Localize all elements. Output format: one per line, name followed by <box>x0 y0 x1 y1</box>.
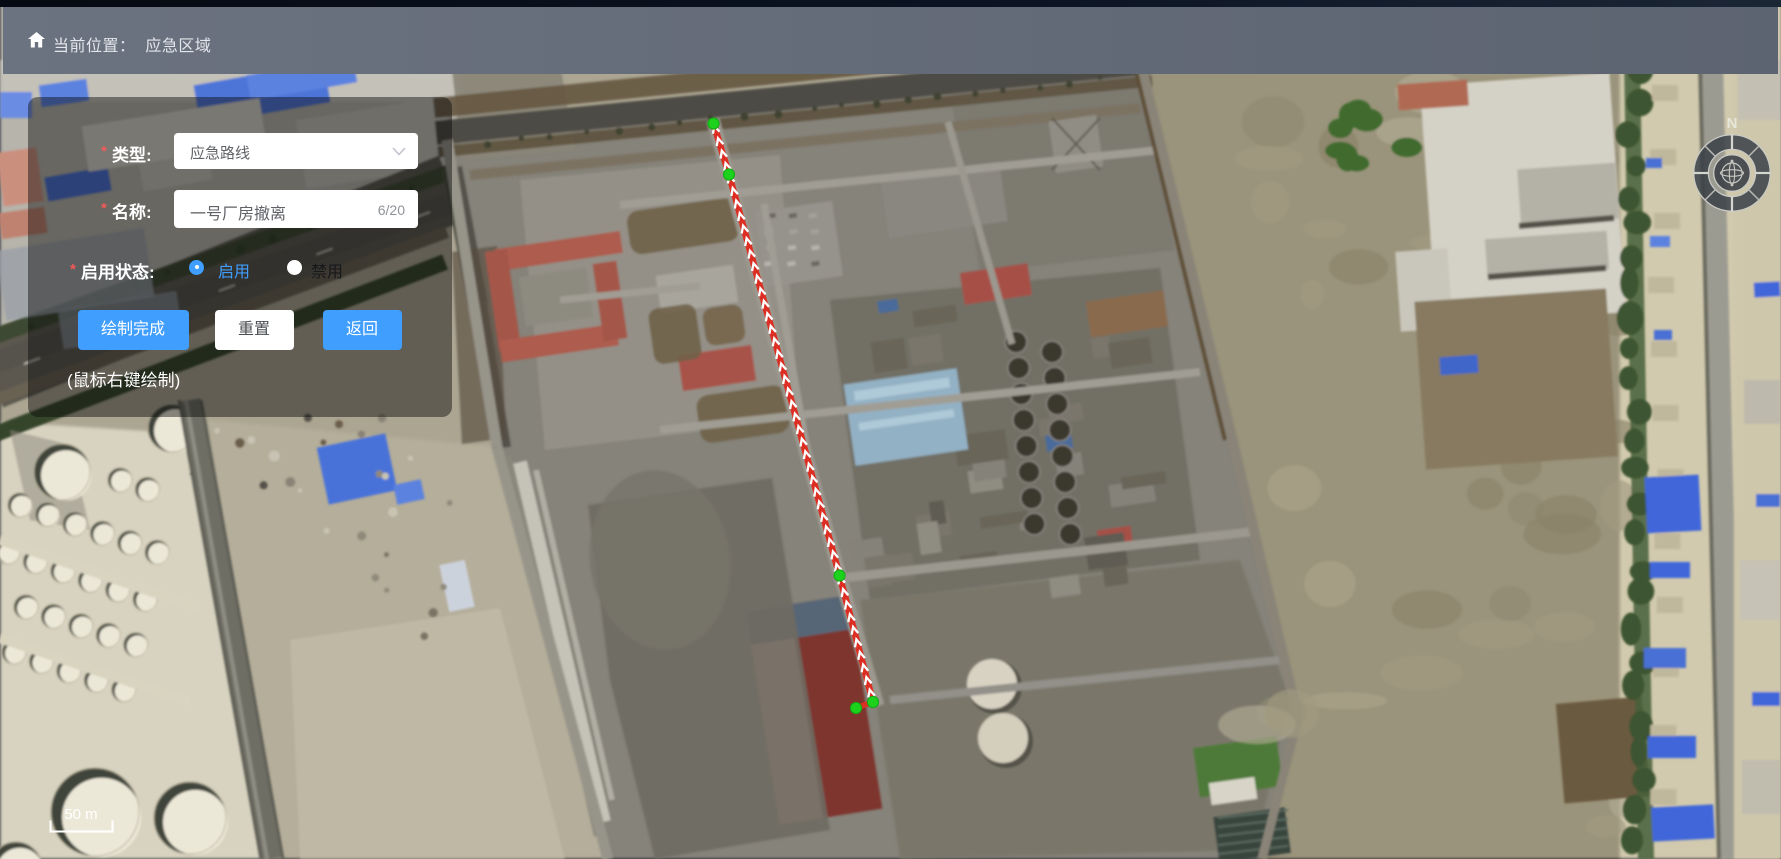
svg-text:N: N <box>1726 115 1737 132</box>
svg-text:50 m: 50 m <box>64 806 97 823</box>
